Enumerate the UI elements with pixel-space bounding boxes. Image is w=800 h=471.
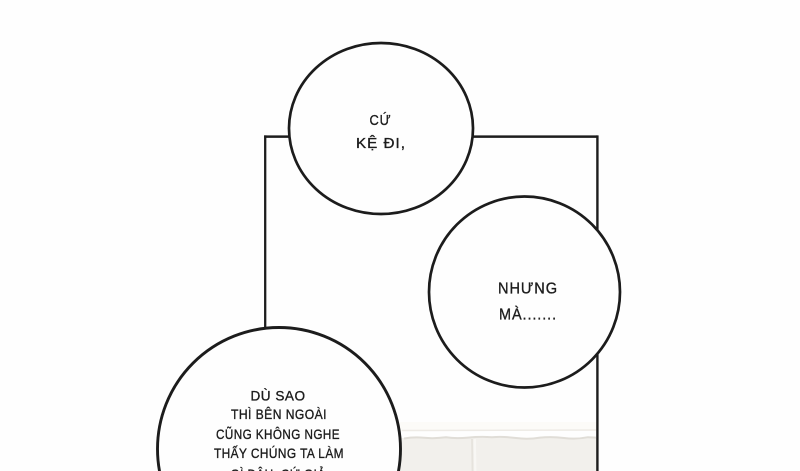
- svg-text:DÙ SAO: DÙ SAO: [251, 388, 306, 404]
- svg-text:CỨ: CỨ: [370, 112, 392, 129]
- svg-text:THẤY CHÚNG TA LÀM: THẤY CHÚNG TA LÀM: [214, 445, 344, 461]
- svg-text:CŨNG KHÔNG NGHE: CŨNG KHÔNG NGHE: [216, 426, 340, 442]
- svg-text:NHƯNG: NHƯNG: [498, 281, 558, 298]
- svg-text:THÌ BÊN NGOÀI: THÌ BÊN NGOÀI: [231, 406, 327, 422]
- svg-text:MÀ.......: MÀ.......: [499, 305, 557, 324]
- svg-text:GÌ ĐÂU, CỨ GIẢ: GÌ ĐÂU, CỨ GIẢ: [231, 466, 326, 471]
- svg-text:KỆ ĐI,: KỆ ĐI,: [356, 135, 406, 152]
